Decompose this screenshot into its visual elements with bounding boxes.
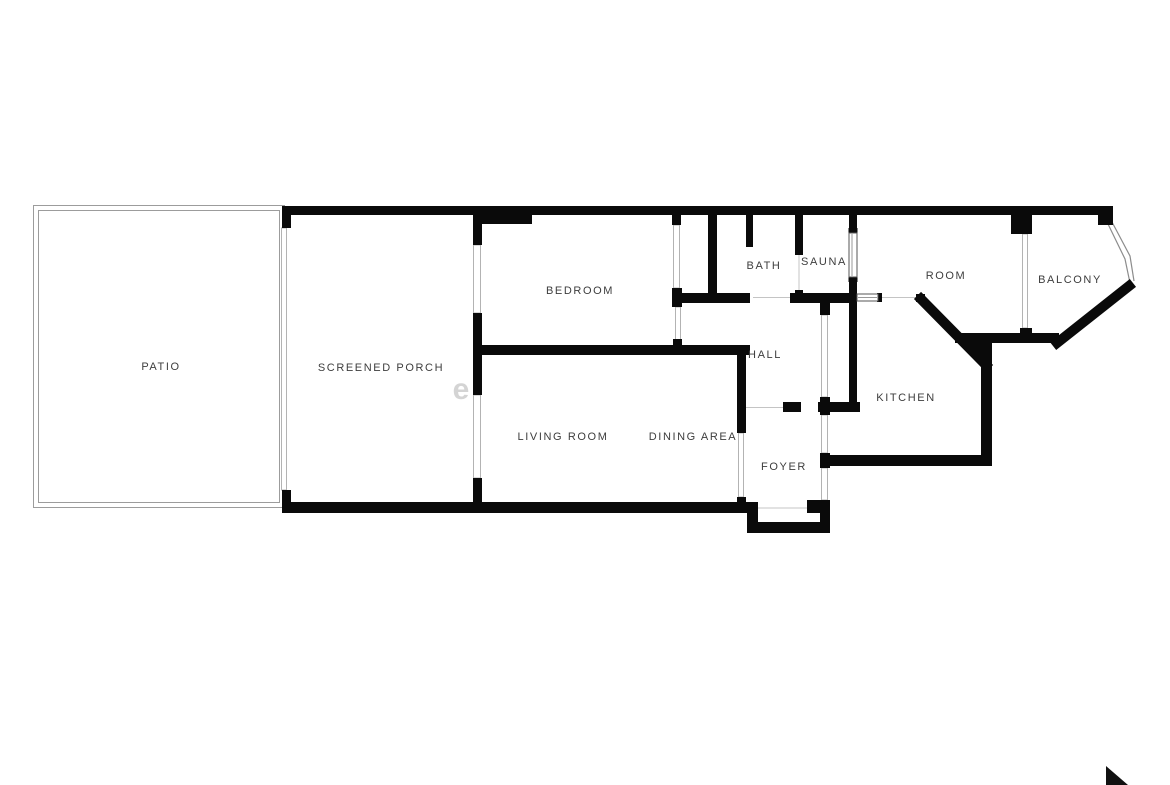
wall-bedroom-right-stub	[672, 215, 681, 225]
arrow-cursor-icon[interactable]	[1106, 766, 1128, 785]
room-label-sauna: SAUNA	[801, 256, 847, 268]
wall-porch-bottomleft-stub	[282, 490, 291, 503]
porch-living-window	[474, 395, 481, 478]
wall-hall-bottom-a	[783, 402, 801, 412]
room-label-bedroom: BEDROOM	[546, 285, 614, 297]
sauna-door-top-cap	[849, 228, 858, 233]
floor-plan: PATIO SCREENED PORCH BEDROOM BATH SAUNA …	[0, 0, 1170, 785]
hall-kitchen-line-upper	[822, 315, 828, 397]
sauna-door-icon	[849, 233, 857, 277]
wall-vestibule-right	[820, 500, 830, 533]
balcony-outline	[1108, 222, 1134, 283]
room-label-screened-porch: SCREENED PORCH	[318, 362, 444, 374]
wall-bedroom-top-thick	[474, 215, 532, 224]
wall-sauna-left	[795, 215, 803, 255]
room-label-bath: BATH	[747, 260, 782, 272]
wall-dining-foyer-divider-bottom	[737, 497, 746, 513]
wall-foyer-right-stub	[820, 453, 830, 468]
wall-porch-divider-upper	[473, 215, 482, 245]
room-label-hall: HALL	[748, 349, 782, 361]
watermark-letter: e	[453, 373, 470, 407]
wall-balcony-corner-block	[1098, 207, 1113, 225]
wall-bath-inner-stub	[746, 215, 753, 247]
wall-porch-topleft-stub	[282, 215, 291, 228]
room-label-living-room: LIVING ROOM	[518, 431, 609, 443]
wall-room-bottom	[955, 333, 1059, 343]
bedroom-door-opening	[674, 225, 680, 288]
floor-plan-drawing	[0, 0, 1170, 785]
foyer-kitchen-line-mid	[822, 415, 828, 453]
wall-room-balcony-block	[1011, 207, 1032, 234]
bedroom-hall-opening	[676, 307, 681, 340]
wall-hall-nub	[673, 339, 682, 345]
wall-bedroom-living-divider	[473, 345, 750, 355]
room-label-patio: PATIO	[141, 361, 180, 373]
room-label-dining-area: DINING AREA	[649, 431, 738, 443]
room-label-kitchen: KITCHEN	[876, 392, 935, 404]
patio-porch-screen-line	[282, 228, 287, 490]
patio-outline	[34, 206, 285, 508]
dining-foyer-opening	[739, 433, 744, 497]
wall-kitchen-left	[849, 278, 857, 412]
room-balcony-glass-line	[1023, 234, 1028, 328]
room-label-foyer: FOYER	[761, 461, 807, 473]
wall-hall-foyer-stub	[820, 397, 830, 415]
room-label-room: ROOM	[926, 270, 967, 282]
wall-vestibule-bottom	[747, 522, 830, 533]
wall-dining-foyer-divider	[737, 345, 746, 433]
wall-porch-divider-lower	[473, 478, 482, 502]
porch-bedroom-window	[474, 245, 481, 313]
wall-balcony-divider-nub	[1020, 328, 1032, 336]
wall-hall-right-stub	[820, 298, 830, 315]
wall-bath-left	[708, 215, 717, 302]
wall-balcony-diagonal	[1057, 286, 1129, 343]
room-label-balcony: BALCONY	[1038, 274, 1102, 286]
wall-kitchen-bottom	[830, 455, 992, 466]
wall-exterior-top	[282, 206, 1113, 215]
wall-exterior-bottom	[282, 502, 758, 513]
foyer-kitchen-line-lower	[822, 468, 828, 500]
sauna-door-bottom-cap	[849, 277, 858, 282]
